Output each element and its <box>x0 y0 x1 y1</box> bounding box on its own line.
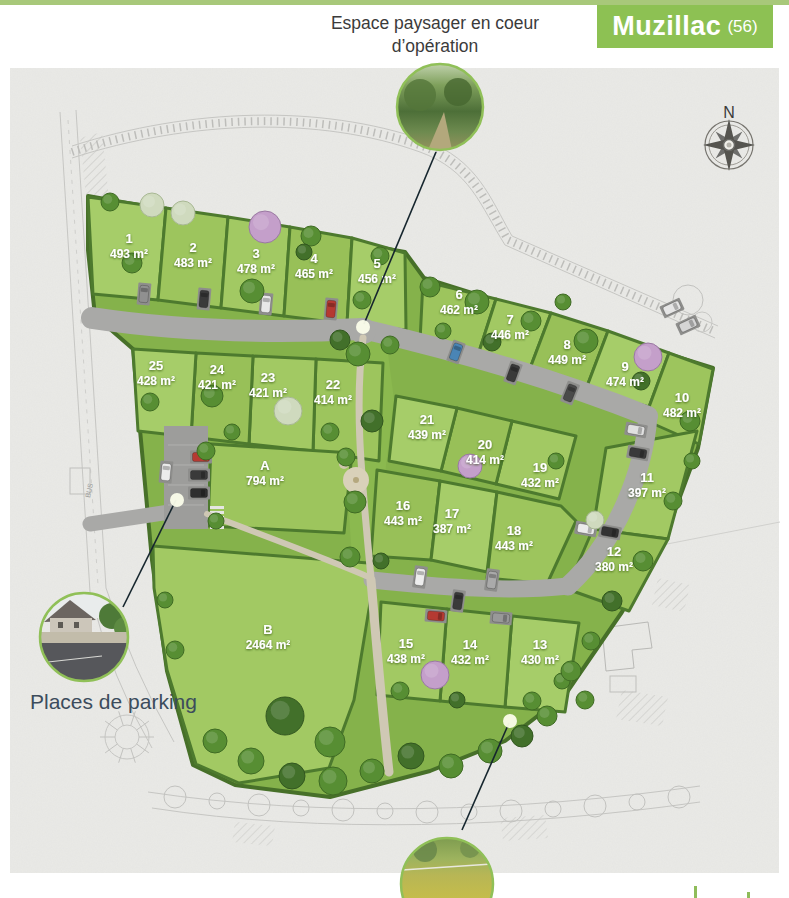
cropped-green-mark <box>694 886 697 898</box>
north-label: N <box>723 104 735 121</box>
tree-icon <box>449 692 465 708</box>
lot-number: 15 <box>399 636 413 651</box>
lot-area: 483 m² <box>174 256 212 270</box>
tree-icon <box>421 661 449 689</box>
lot-number: 8 <box>563 337 570 352</box>
lot-number: 7 <box>506 312 513 327</box>
tree-icon <box>684 453 700 469</box>
parking-callout-label: Places de parking <box>30 690 197 714</box>
leader-target-dot <box>170 493 184 507</box>
lot-area: 465 m² <box>295 267 333 281</box>
lot-area: 428 m² <box>137 374 175 388</box>
tree-icon <box>249 211 281 243</box>
lot-number: 14 <box>463 637 478 652</box>
tree-icon <box>337 448 355 466</box>
lot-number: 3 <box>252 246 259 261</box>
car-icon <box>159 460 174 483</box>
car-icon <box>424 609 447 624</box>
tree-icon <box>511 725 533 747</box>
lot-parcel-25 <box>133 349 196 437</box>
tree-icon <box>523 692 541 710</box>
lot-number: 6 <box>455 287 462 302</box>
lot-number: 23 <box>261 370 275 385</box>
tree-icon <box>340 547 360 567</box>
lot-area: 449 m² <box>548 353 586 367</box>
tree-icon <box>664 492 682 510</box>
tree-icon <box>238 748 264 774</box>
lot-number: 19 <box>533 460 547 475</box>
lot-number: B <box>263 622 272 637</box>
tree-icon <box>555 294 571 310</box>
lot-area: 462 m² <box>440 303 478 317</box>
espace-paysager-callout: Espace paysager en coeur d’opération <box>285 12 585 58</box>
tree-icon <box>537 706 557 726</box>
lot-area: 446 m² <box>491 328 529 342</box>
lot-area: 421 m² <box>198 378 236 392</box>
site-plan-map: BUS 1493 m²2483 m²3478 m²4465 m²5456 m²6… <box>0 0 789 898</box>
lot-number: 12 <box>607 544 621 559</box>
tree-icon <box>101 193 119 211</box>
tree-icon <box>602 591 622 611</box>
lot-number: A <box>260 458 270 473</box>
play-equipment <box>353 477 359 483</box>
tree-icon <box>398 743 424 769</box>
car-icon <box>188 469 210 482</box>
lot-area: 380 m² <box>595 560 633 574</box>
road <box>92 318 363 331</box>
lot-number: 25 <box>149 358 163 373</box>
tree-icon <box>203 729 227 753</box>
tree-icon <box>301 226 321 246</box>
tree-icon <box>315 727 345 757</box>
lot-area: 456 m² <box>358 272 396 286</box>
leader-target-dot <box>503 714 517 728</box>
lot-number: 18 <box>507 523 521 538</box>
tree-icon <box>274 397 302 425</box>
lot-area: 493 m² <box>110 247 148 261</box>
lot-number: 11 <box>640 470 654 485</box>
department-number: (56) <box>727 17 757 37</box>
tree-icon <box>420 277 440 297</box>
lot-area: 443 m² <box>495 539 533 553</box>
lot-area: 439 m² <box>408 428 446 442</box>
location-banner: Muzillac (56) <box>597 5 773 48</box>
tree-icon <box>346 342 370 366</box>
tree-icon <box>576 691 594 709</box>
lot-area: 2464 m² <box>246 638 291 652</box>
tree-icon <box>279 763 305 789</box>
lot-area: 482 m² <box>663 406 701 420</box>
lot-number: 2 <box>189 240 196 255</box>
car-icon <box>197 287 212 310</box>
lot-area: 432 m² <box>451 653 489 667</box>
tree-icon <box>633 551 653 571</box>
car-icon <box>137 282 152 305</box>
tree-icon <box>171 201 195 225</box>
tree-icon <box>141 393 159 411</box>
tree-icon <box>435 323 451 339</box>
lot-number: 5 <box>373 256 380 271</box>
tree-icon <box>321 423 339 441</box>
tree-icon <box>344 491 366 513</box>
tree-icon <box>360 759 384 783</box>
tree-icon <box>166 641 184 659</box>
lot-area: 430 m² <box>521 653 559 667</box>
espace-callout-line2: d’opération <box>285 35 585 58</box>
tree-icon <box>586 511 604 529</box>
lot-area: 421 m² <box>249 386 287 400</box>
lot-area: 414 m² <box>466 453 504 467</box>
tree-icon <box>157 592 173 608</box>
tree-icon <box>439 754 463 778</box>
tree-icon <box>574 329 598 353</box>
lot-area: 397 m² <box>628 486 666 500</box>
town-name: Muzillac <box>612 11 721 42</box>
lot-area: 474 m² <box>606 375 644 389</box>
lot-number: 22 <box>326 377 340 392</box>
tree-icon <box>634 343 662 371</box>
tree-icon <box>373 553 389 569</box>
tree-icon <box>381 336 399 354</box>
lot-number: 1 <box>125 231 132 246</box>
car-icon <box>188 487 210 500</box>
tree-icon <box>548 453 564 469</box>
espace-callout-line1: Espace paysager en coeur <box>285 12 585 35</box>
tree-icon <box>140 193 164 217</box>
lot-number: 20 <box>478 437 492 452</box>
tree-icon <box>353 291 371 309</box>
cropped-green-mark <box>747 892 750 898</box>
lot-area: 387 m² <box>433 522 471 536</box>
tree-icon <box>361 410 383 432</box>
car-icon <box>489 611 512 626</box>
lot-number: 16 <box>396 498 410 513</box>
leader-target-dot <box>356 320 370 334</box>
tree-icon <box>478 739 502 763</box>
lot-number: 9 <box>621 359 628 374</box>
lot-number: 13 <box>533 637 547 652</box>
tree-icon <box>208 513 224 529</box>
lot-number: 17 <box>445 506 459 521</box>
tree-icon <box>197 442 215 460</box>
lot-number: 21 <box>420 412 434 427</box>
tree-icon <box>224 424 240 440</box>
lot-area: 414 m² <box>314 393 352 407</box>
tree-icon <box>330 330 350 350</box>
lot-number: 10 <box>675 390 689 405</box>
lot-number: 4 <box>310 251 318 266</box>
lot-number: 24 <box>210 362 225 377</box>
lot-area: 432 m² <box>521 476 559 490</box>
car-icon <box>324 297 339 320</box>
lot-area: 443 m² <box>384 514 422 528</box>
lot-area: 794 m² <box>246 474 284 488</box>
road <box>372 580 568 589</box>
sketch-hatch-patch <box>232 822 275 846</box>
tree-icon <box>266 697 304 735</box>
tree-icon <box>561 661 581 681</box>
tree-icon <box>391 682 409 700</box>
tree-icon <box>582 632 600 650</box>
lot-area: 438 m² <box>387 652 425 666</box>
lot-area: 478 m² <box>237 262 275 276</box>
sketch-hatch-patch <box>500 815 548 841</box>
tree-icon <box>240 279 264 303</box>
tree-icon <box>319 767 347 795</box>
